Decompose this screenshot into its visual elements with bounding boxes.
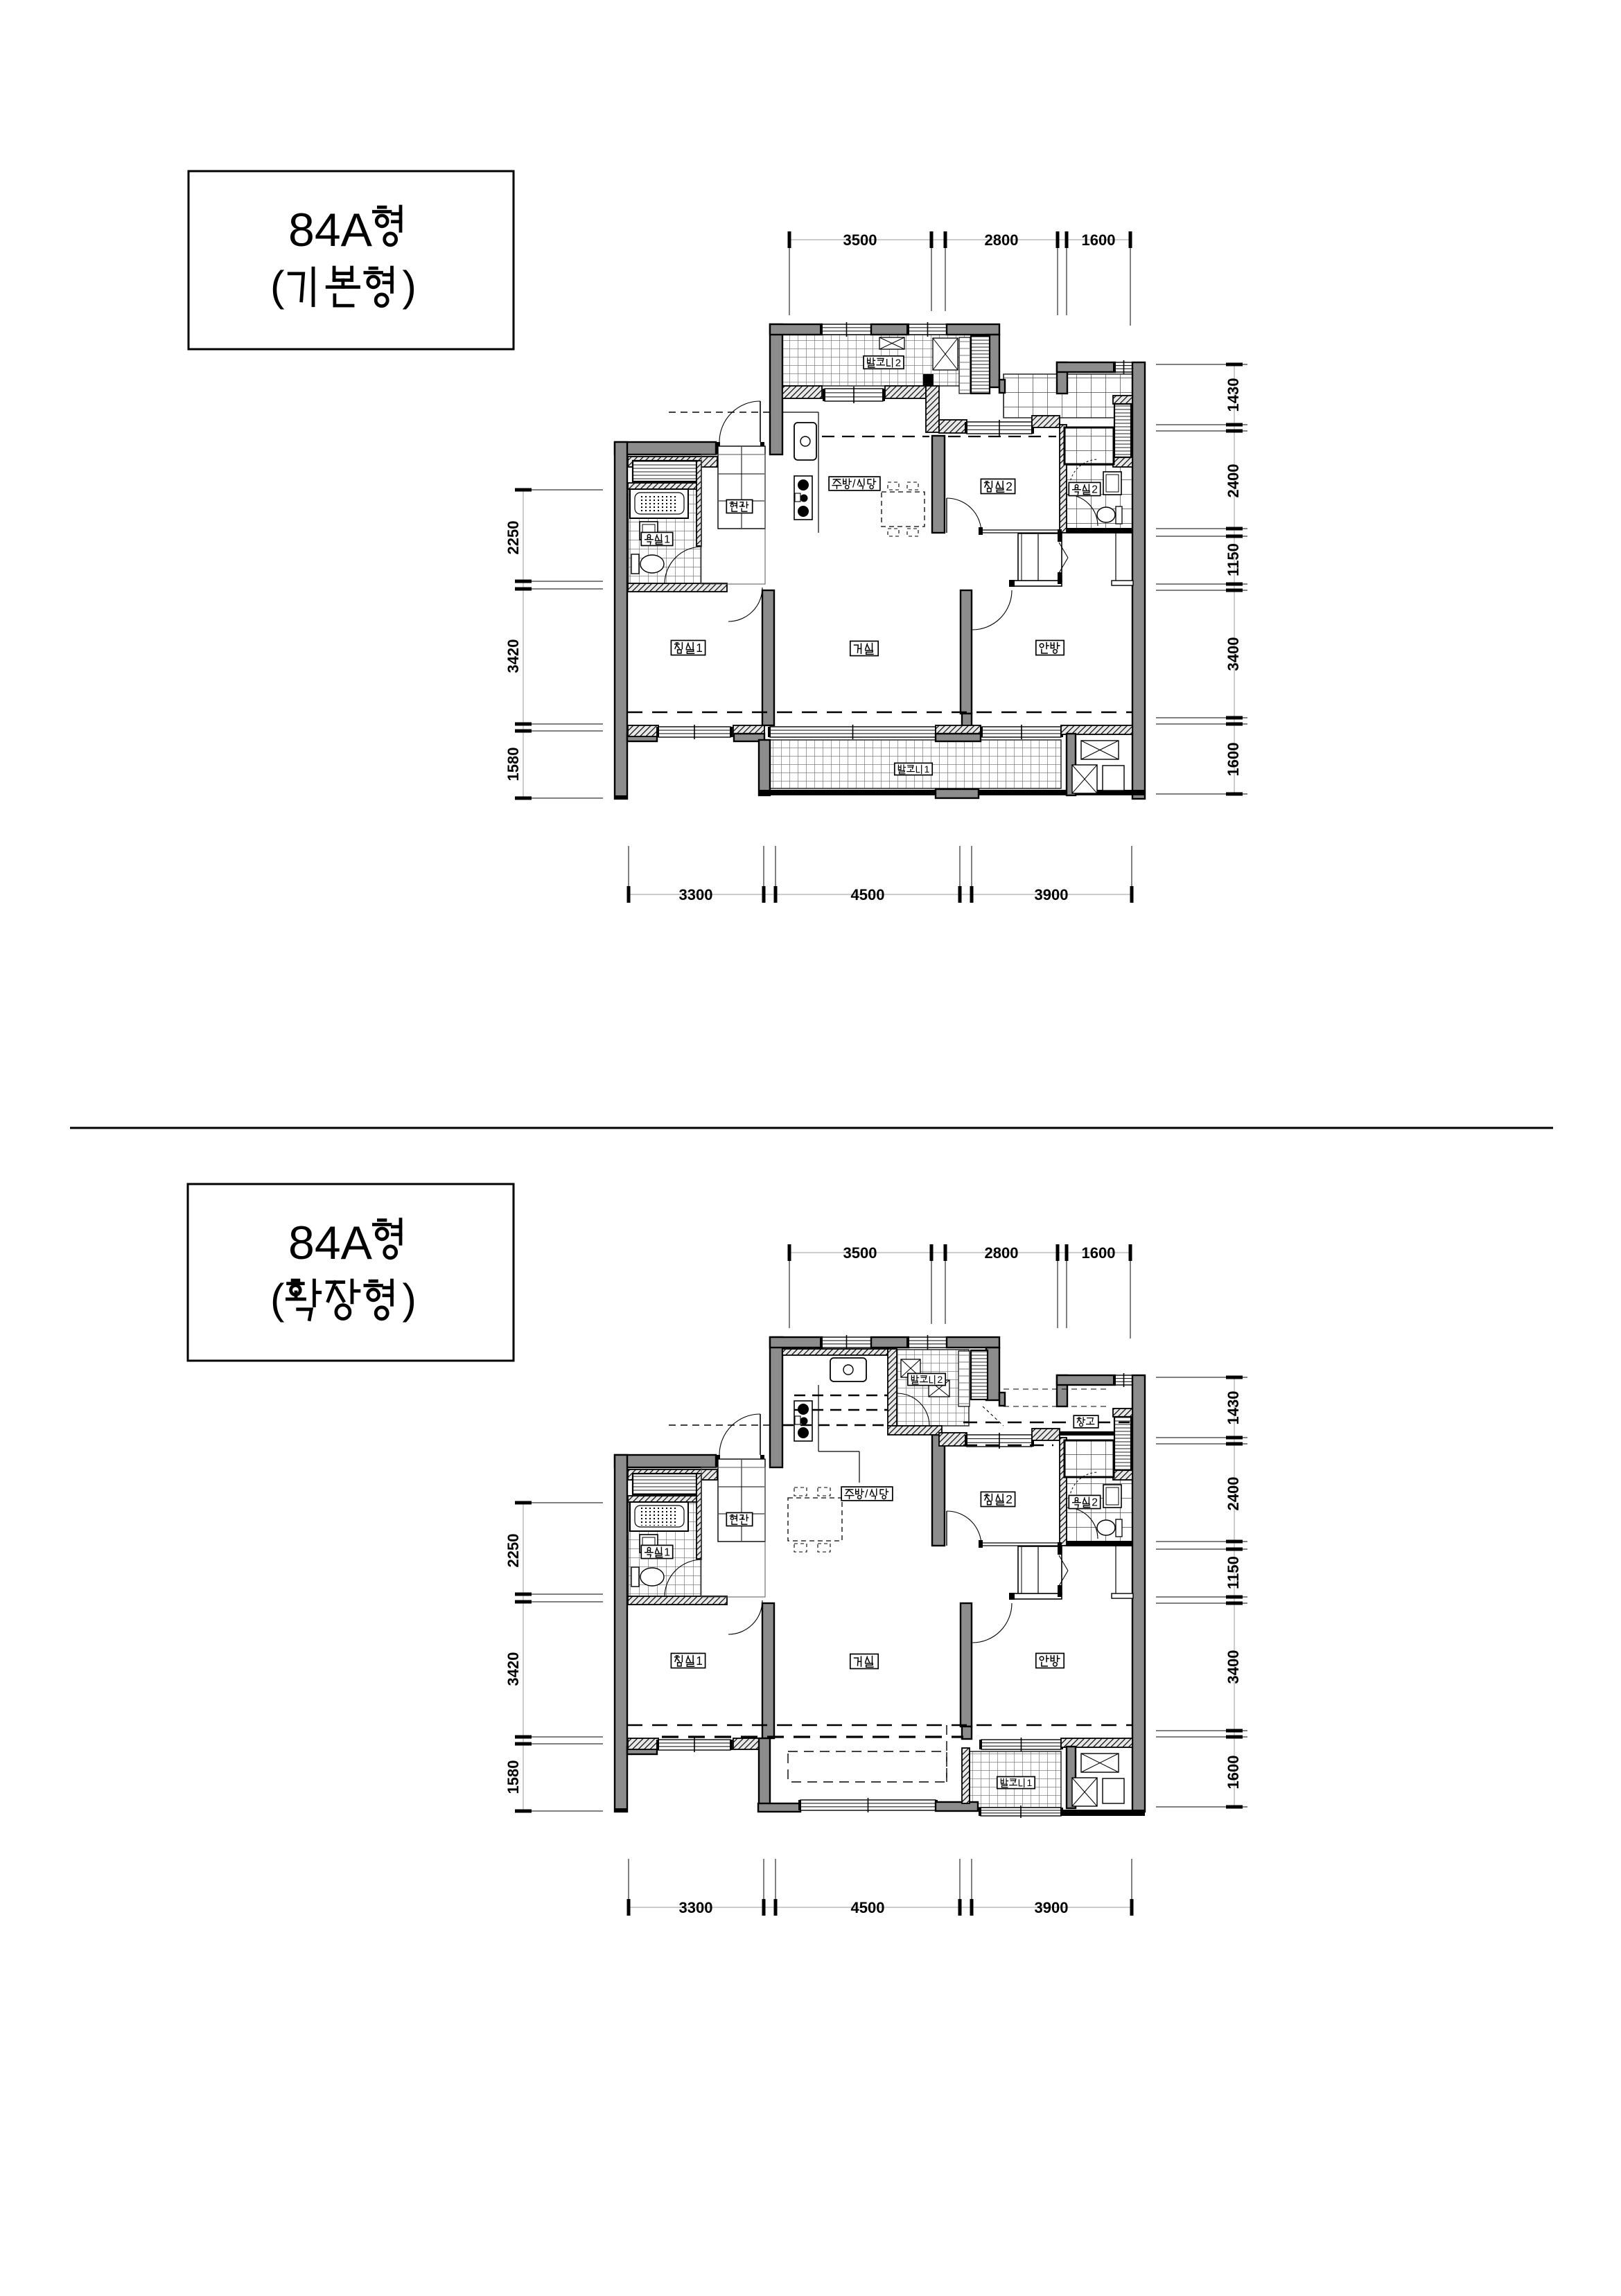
svg-text:2: 2	[1006, 479, 1013, 493]
svg-text:1: 1	[696, 641, 703, 655]
svg-text:1430: 1430	[1225, 1391, 1242, 1425]
svg-text:3420: 3420	[505, 1652, 522, 1686]
svg-text:3420: 3420	[505, 639, 522, 673]
svg-text:3900: 3900	[1035, 1899, 1069, 1916]
svg-text:): )	[402, 263, 417, 310]
svg-text:1: 1	[1027, 1777, 1033, 1788]
svg-text:4500: 4500	[851, 886, 885, 903]
svg-text:3500: 3500	[843, 1244, 877, 1262]
svg-text:(: (	[270, 1275, 285, 1323]
svg-text:1600: 1600	[1082, 231, 1116, 249]
svg-text:): )	[402, 1275, 417, 1323]
svg-text:1150: 1150	[1225, 1556, 1242, 1589]
svg-text:3900: 3900	[1035, 886, 1069, 903]
svg-text:1150: 1150	[1225, 543, 1242, 576]
svg-text:2400: 2400	[1225, 1477, 1242, 1511]
svg-text:2800: 2800	[985, 231, 1019, 249]
svg-text:2: 2	[1092, 484, 1098, 495]
svg-text:1430: 1430	[1225, 378, 1242, 412]
svg-text:1600: 1600	[1225, 743, 1242, 777]
svg-text:1: 1	[664, 533, 670, 545]
svg-text:2: 2	[1006, 1492, 1013, 1506]
svg-text:3300: 3300	[679, 1899, 713, 1916]
svg-text:4500: 4500	[851, 1899, 885, 1916]
svg-text:3400: 3400	[1225, 1650, 1242, 1684]
svg-text:84A: 84A	[288, 1217, 373, 1269]
svg-text:2250: 2250	[505, 1534, 522, 1568]
svg-text:2: 2	[895, 357, 901, 369]
svg-text:1580: 1580	[505, 748, 522, 781]
svg-text:2250: 2250	[505, 521, 522, 555]
svg-text:3300: 3300	[679, 886, 713, 903]
svg-text:1: 1	[696, 1654, 703, 1668]
svg-text:3500: 3500	[843, 231, 877, 249]
svg-text:/: /	[865, 1488, 868, 1501]
svg-text:2: 2	[938, 1374, 943, 1385]
svg-text:1580: 1580	[505, 1760, 522, 1794]
svg-text:/: /	[852, 478, 856, 491]
svg-text:3400: 3400	[1225, 637, 1242, 671]
svg-text:2800: 2800	[985, 1244, 1019, 1262]
svg-text:1600: 1600	[1225, 1756, 1242, 1790]
svg-text:2: 2	[1092, 1496, 1098, 1508]
svg-text:84A: 84A	[288, 204, 373, 256]
svg-text:1: 1	[925, 763, 930, 775]
svg-text:(: (	[270, 263, 285, 310]
svg-text:2400: 2400	[1225, 464, 1242, 498]
svg-text:1600: 1600	[1082, 1244, 1116, 1262]
svg-text:1: 1	[664, 1546, 670, 1558]
